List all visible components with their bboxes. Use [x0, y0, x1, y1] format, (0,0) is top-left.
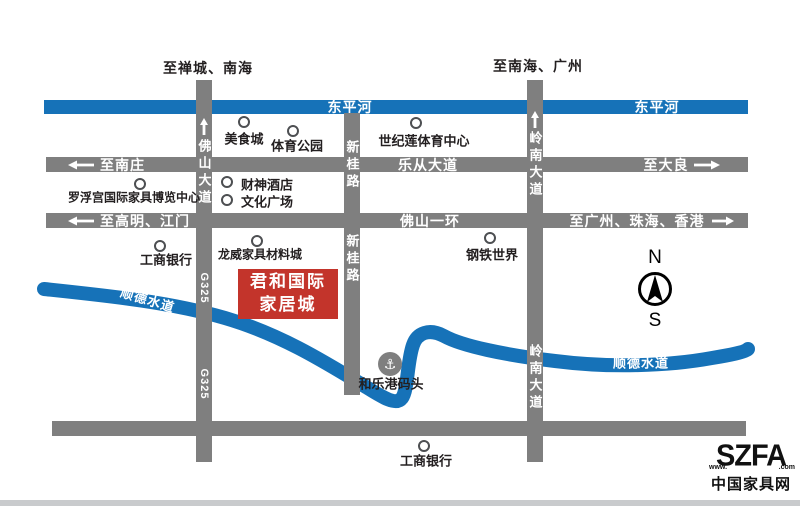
lingnan-avenue-label: 岭南大道: [529, 344, 542, 412]
logo-brand: SZFA: [716, 441, 786, 471]
poi-label: 世纪莲体育中心: [378, 131, 469, 150]
dest-guangzhou-zhuhai-hongkong: 至广州、珠海、香港: [570, 211, 705, 231]
up-arrow-icon: [531, 111, 539, 128]
hele-port-label: 和乐港码头: [358, 374, 423, 393]
poi-marker: [238, 116, 250, 128]
poi-label: 体育公园: [271, 136, 323, 155]
lingnan-avenue-label: 岭南大道: [529, 131, 542, 199]
south-road: [52, 421, 746, 436]
poi-label: 龙威家具材料城: [218, 246, 302, 263]
map-canvas: 至禅城、南海 至南海、广州 东平河 东平河 佛山大道 G325 G325 新桂路…: [0, 0, 800, 506]
poi-label: 罗浮宫国际家具博览中心: [68, 189, 200, 206]
compass-south-label: S: [649, 310, 662, 332]
dest-gaoming-jiangmen: 至高明、江门: [100, 211, 190, 231]
poi-marker: [221, 176, 233, 188]
szfa-logo: www. SZFA .com 中国家具网: [706, 442, 796, 494]
up-arrow-icon: [200, 118, 208, 135]
anchor-icon: ⚓: [378, 352, 402, 376]
g325-label: G325: [198, 369, 210, 400]
landmark-line1: 君和国际: [250, 271, 326, 294]
poi-label: 钢铁世界: [466, 245, 518, 264]
dest-daliang: 至大良: [644, 155, 689, 175]
poi-label: 美食城: [224, 129, 263, 148]
map-border-bottom: [0, 500, 800, 506]
poi-marker: [484, 232, 496, 244]
foshan-avenue-road: [196, 80, 212, 462]
poi-label: 文化广场: [241, 192, 293, 211]
junhe-international-home-city-landmark: 君和国际 家居城: [238, 269, 338, 319]
g325-label: G325: [198, 273, 210, 304]
poi-label: 工商银行: [140, 250, 192, 269]
foshan-ring-name: 佛山一环: [400, 211, 460, 231]
compass-north-label: N: [648, 247, 662, 269]
compass-needle-icon: [638, 272, 672, 306]
lecong-avenue-name: 乐从大道: [398, 155, 458, 175]
dest-nanzhuang: 至南庄: [100, 155, 145, 175]
xingui-road-label: 新桂路: [346, 234, 359, 285]
left-arrow-icon: [68, 160, 94, 170]
logo-com: .com: [779, 464, 795, 471]
poi-marker: [410, 117, 422, 129]
left-arrow-icon: [68, 216, 94, 226]
landmark-line2: 家居城: [260, 294, 317, 317]
right-arrow-icon: [712, 216, 734, 226]
shunde-river-label: 顺德水道: [613, 353, 669, 372]
poi-label: 工商银行: [400, 451, 452, 470]
logo-site-name: 中国家具网: [706, 473, 796, 494]
xingui-road-label: 新桂路: [346, 140, 359, 191]
poi-marker: [221, 194, 233, 206]
right-arrow-icon: [694, 160, 720, 170]
